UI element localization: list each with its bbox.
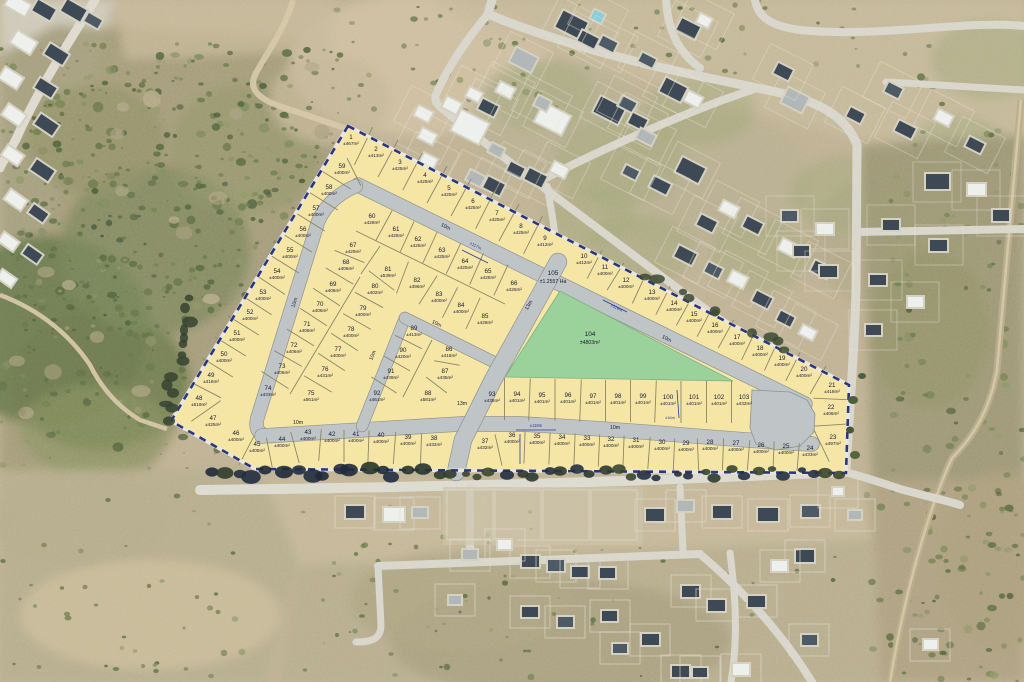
svg-text:27: 27: [733, 440, 740, 447]
svg-text:±401m²: ±401m²: [686, 401, 702, 406]
svg-text:88: 88: [425, 390, 432, 397]
svg-text:±406m²: ±406m²: [325, 288, 341, 293]
svg-text:±425m²: ±425m²: [489, 217, 505, 222]
svg-text:92: 92: [374, 390, 381, 397]
svg-text:44: 44: [279, 436, 286, 443]
svg-text:±118m: ±118m: [530, 423, 543, 428]
svg-text:82: 82: [414, 277, 421, 284]
svg-text:±400m²: ±400m²: [529, 440, 545, 445]
svg-text:±497m²: ±497m²: [825, 441, 841, 446]
svg-text:±433m²: ±433m²: [802, 452, 818, 457]
svg-text:±400m²: ±400m²: [269, 275, 285, 280]
svg-text:±432m²: ±432m²: [426, 442, 442, 447]
svg-text:94: 94: [514, 391, 521, 398]
svg-text:±400m²: ±400m²: [330, 353, 346, 358]
svg-text:22: 22: [828, 404, 835, 411]
svg-text:68: 68: [343, 259, 350, 266]
svg-text:±400m²: ±400m²: [216, 358, 232, 363]
svg-text:±435m²: ±435m²: [437, 375, 453, 380]
svg-text:10m: 10m: [610, 425, 620, 431]
svg-text:4: 4: [423, 172, 427, 179]
svg-text:±406m²: ±406m²: [286, 349, 302, 354]
svg-text:28: 28: [707, 439, 714, 446]
svg-text:90: 90: [400, 347, 407, 354]
svg-text:47: 47: [210, 415, 217, 422]
svg-text:±400m²: ±400m²: [752, 352, 768, 357]
svg-text:±400m²: ±400m²: [579, 442, 595, 447]
svg-text:105: 105: [548, 270, 559, 277]
svg-text:40: 40: [378, 432, 385, 439]
svg-text:±401m²: ±401m²: [711, 401, 727, 406]
svg-text:20: 20: [801, 366, 808, 373]
svg-text:±400m²: ±400m²: [228, 437, 244, 442]
svg-text:±402m²: ±402m²: [367, 290, 383, 295]
svg-text:34: 34: [559, 434, 566, 441]
svg-text:58: 58: [326, 184, 333, 191]
svg-text:±400m²: ±400m²: [644, 296, 660, 301]
svg-text:8: 8: [519, 223, 523, 230]
svg-text:48: 48: [196, 395, 203, 402]
svg-text:±412m²: ±412m²: [537, 242, 553, 247]
svg-text:1: 1: [349, 134, 353, 141]
svg-text:11: 11: [602, 264, 609, 271]
svg-text:±425m²: ±425m²: [465, 205, 481, 210]
svg-text:73: 73: [279, 363, 286, 370]
svg-text:3: 3: [398, 159, 402, 166]
svg-text:65: 65: [485, 268, 492, 275]
svg-text:±400m²: ±400m²: [295, 233, 311, 238]
svg-text:5: 5: [447, 185, 451, 192]
svg-text:63: 63: [439, 247, 446, 254]
svg-text:±400m²: ±400m²: [343, 333, 359, 338]
svg-text:±405m²: ±405m²: [249, 448, 265, 453]
svg-text:32: 32: [608, 436, 615, 443]
svg-text:±400m²: ±400m²: [618, 284, 634, 289]
svg-text:±425m²: ±425m²: [480, 275, 496, 280]
svg-text:104: 104: [585, 331, 596, 338]
svg-text:±461m²: ±461m²: [369, 397, 385, 402]
svg-text:91: 91: [388, 368, 395, 375]
svg-text:±400m²: ±400m²: [686, 318, 702, 323]
svg-text:±425m²: ±425m²: [417, 179, 433, 184]
svg-text:±400m²: ±400m²: [707, 329, 723, 334]
svg-text:18: 18: [757, 345, 764, 352]
svg-text:10m: 10m: [293, 420, 303, 426]
svg-text:95: 95: [539, 392, 546, 399]
svg-text:±425m²: ±425m²: [434, 254, 450, 259]
svg-text:23: 23: [830, 434, 837, 441]
svg-text:31: 31: [633, 437, 640, 444]
svg-text:17: 17: [734, 334, 741, 341]
svg-text:±400m²: ±400m²: [321, 191, 337, 196]
svg-text:87: 87: [442, 368, 449, 375]
svg-text:51: 51: [234, 330, 241, 337]
svg-text:±433m²: ±433m²: [260, 392, 276, 397]
svg-text:±432m²: ±432m²: [736, 401, 752, 406]
svg-text:±426m²: ±426m²: [506, 287, 522, 292]
svg-text:±400m²: ±400m²: [274, 443, 290, 448]
svg-text:69: 69: [330, 281, 337, 288]
svg-text:19: 19: [779, 355, 786, 362]
svg-text:46: 46: [233, 430, 240, 437]
svg-text:25: 25: [783, 443, 790, 450]
svg-text:±406m²: ±406m²: [299, 328, 315, 333]
svg-text:±400m²: ±400m²: [282, 254, 298, 259]
svg-text:±418m²: ±418m²: [824, 389, 840, 394]
svg-text:2: 2: [374, 146, 378, 153]
svg-text:76: 76: [322, 366, 329, 373]
svg-text:74: 74: [265, 385, 272, 392]
svg-text:±416m²: ±416m²: [203, 379, 219, 384]
svg-text:83: 83: [436, 291, 443, 298]
svg-text:78: 78: [348, 326, 355, 333]
svg-text:±429m²: ±429m²: [345, 249, 361, 254]
svg-text:6: 6: [471, 198, 475, 205]
svg-text:16: 16: [712, 322, 719, 329]
svg-text:±431m²: ±431m²: [317, 373, 333, 378]
svg-text:±400m²: ±400m²: [355, 312, 371, 317]
svg-text:97: 97: [590, 393, 597, 400]
svg-text:±400m²: ±400m²: [400, 441, 416, 446]
svg-text:30: 30: [659, 439, 666, 446]
svg-text:37: 37: [482, 438, 489, 445]
svg-text:72: 72: [291, 342, 298, 349]
svg-text:7: 7: [495, 210, 499, 217]
svg-text:±425m²: ±425m²: [441, 192, 457, 197]
svg-text:±1.2557 Ha: ±1.2557 Ha: [540, 279, 567, 285]
svg-text:±400m²: ±400m²: [373, 439, 389, 444]
svg-text:±400m²: ±400m²: [504, 439, 520, 444]
svg-text:61: 61: [393, 226, 400, 233]
svg-text:±401m²: ±401m²: [610, 400, 626, 405]
svg-text:±400m²: ±400m²: [334, 170, 350, 175]
svg-text:98: 98: [615, 393, 622, 400]
svg-text:81: 81: [385, 266, 392, 273]
svg-text:±467m²: ±467m²: [343, 141, 359, 146]
svg-text:±406m²: ±406m²: [338, 266, 354, 271]
svg-text:±400m²: ±400m²: [308, 212, 324, 217]
svg-text:±425m²: ±425m²: [392, 166, 408, 171]
svg-text:±400m²: ±400m²: [348, 438, 364, 443]
svg-text:±401m²: ±401m²: [660, 401, 676, 406]
svg-text:±400m²: ±400m²: [654, 446, 670, 451]
svg-text:±420m²: ±420m²: [395, 354, 411, 359]
svg-text:±400m²: ±400m²: [778, 450, 794, 455]
svg-text:93: 93: [489, 391, 496, 398]
svg-text:77: 77: [335, 346, 342, 353]
svg-text:±401m²: ±401m²: [534, 399, 550, 404]
svg-text:29: 29: [683, 440, 690, 447]
svg-text:±406m²: ±406m²: [274, 370, 290, 375]
svg-text:±400m²: ±400m²: [242, 316, 258, 321]
svg-text:±400m²: ±400m²: [554, 441, 570, 446]
svg-text:±425m²: ±425m²: [410, 243, 426, 248]
svg-text:26: 26: [758, 442, 765, 449]
svg-text:±418m²: ±418m²: [441, 353, 457, 358]
svg-text:103: 103: [739, 394, 750, 401]
svg-text:±413m²: ±413m²: [368, 153, 384, 158]
svg-text:36: 36: [509, 432, 516, 439]
svg-text:±412m²: ±412m²: [576, 260, 592, 265]
svg-text:±581m²: ±581m²: [420, 397, 436, 402]
svg-text:±432m²: ±432m²: [477, 445, 493, 450]
svg-text:60: 60: [369, 213, 376, 220]
svg-text:±400m²: ±400m²: [728, 447, 744, 452]
svg-text:15: 15: [691, 311, 698, 318]
svg-text:86: 86: [446, 346, 453, 353]
svg-text:±396m²: ±396m²: [409, 284, 425, 289]
svg-text:±400m²: ±400m²: [702, 446, 718, 451]
svg-text:±413m²: ±413m²: [406, 332, 422, 337]
svg-text:13m: 13m: [457, 401, 467, 407]
svg-text:102: 102: [714, 394, 725, 401]
svg-text:100: 100: [663, 394, 674, 401]
svg-text:±400m²: ±400m²: [324, 438, 340, 443]
svg-text:±428m²: ±428m²: [364, 220, 380, 225]
svg-text:56: 56: [300, 226, 307, 233]
svg-text:42: 42: [329, 431, 336, 438]
svg-text:±16m: ±16m: [665, 415, 676, 420]
svg-text:±401m²: ±401m²: [560, 399, 576, 404]
svg-text:99: 99: [640, 393, 647, 400]
svg-text:49: 49: [208, 372, 215, 379]
svg-text:9: 9: [543, 235, 547, 242]
svg-text:14: 14: [671, 300, 678, 307]
svg-text:41: 41: [353, 431, 360, 438]
svg-text:±400m²: ±400m²: [431, 298, 447, 303]
svg-text:±400m²: ±400m²: [796, 373, 812, 378]
svg-text:21: 21: [829, 382, 836, 389]
svg-text:57: 57: [313, 205, 320, 212]
svg-text:±425m²: ±425m²: [457, 265, 473, 270]
svg-text:±401m²: ±401m²: [509, 398, 525, 403]
svg-text:±519m²: ±519m²: [191, 402, 207, 407]
svg-text:59: 59: [339, 163, 346, 170]
svg-text:±539m²: ±539m²: [380, 273, 396, 278]
svg-text:±400m²: ±400m²: [300, 436, 316, 441]
svg-text:67: 67: [350, 242, 357, 249]
svg-text:±400m²: ±400m²: [753, 449, 769, 454]
svg-text:43: 43: [305, 429, 312, 436]
svg-text:53: 53: [260, 289, 267, 296]
svg-text:±400m²: ±400m²: [229, 337, 245, 342]
svg-text:54: 54: [274, 268, 281, 275]
svg-text:±561m²: ±561m²: [303, 397, 319, 402]
svg-text:±400m²: ±400m²: [678, 447, 694, 452]
svg-text:±428m²: ±428m²: [477, 320, 493, 325]
svg-text:24: 24: [807, 445, 814, 452]
svg-text:39: 39: [405, 434, 412, 441]
svg-text:±406m²: ±406m²: [312, 308, 328, 313]
svg-text:±400m²: ±400m²: [628, 444, 644, 449]
svg-text:64: 64: [462, 258, 469, 265]
svg-text:45: 45: [254, 441, 261, 448]
svg-text:35: 35: [534, 433, 541, 440]
svg-text:70: 70: [317, 301, 324, 308]
svg-text:62: 62: [415, 236, 422, 243]
svg-text:89: 89: [411, 325, 418, 332]
svg-text:80: 80: [372, 283, 379, 290]
svg-text:±400m²: ±400m²: [597, 271, 613, 276]
svg-text:13: 13: [649, 289, 656, 296]
svg-text:96: 96: [565, 392, 572, 399]
svg-text:±435m²: ±435m²: [484, 398, 500, 403]
svg-text:±401m²: ±401m²: [585, 400, 601, 405]
svg-text:±439m²: ±439m²: [383, 375, 399, 380]
svg-text:±4803m²: ±4803m²: [580, 340, 601, 346]
svg-text:101: 101: [689, 394, 700, 401]
svg-text:55: 55: [287, 247, 294, 254]
svg-text:33: 33: [584, 435, 591, 442]
svg-text:±425m²: ±425m²: [205, 422, 221, 427]
svg-text:±425m²: ±425m²: [513, 230, 529, 235]
svg-text:±406m²: ±406m²: [823, 411, 839, 416]
svg-text:±400m²: ±400m²: [453, 309, 469, 314]
svg-text:±400m²: ±400m²: [729, 341, 745, 346]
svg-text:66: 66: [511, 280, 518, 287]
svg-text:84: 84: [458, 302, 465, 309]
svg-text:10: 10: [581, 253, 588, 260]
svg-text:85: 85: [482, 313, 489, 320]
svg-text:71: 71: [304, 321, 311, 328]
svg-text:±400m²: ±400m²: [666, 307, 682, 312]
svg-text:75: 75: [308, 390, 315, 397]
svg-text:12: 12: [623, 277, 630, 284]
svg-text:±401m²: ±401m²: [635, 400, 651, 405]
svg-text:79: 79: [360, 305, 367, 312]
svg-text:50: 50: [221, 351, 228, 358]
svg-text:±400m²: ±400m²: [255, 296, 271, 301]
svg-text:±425m²: ±425m²: [388, 233, 404, 238]
svg-text:±400m²: ±400m²: [603, 443, 619, 448]
svg-text:38: 38: [431, 435, 438, 442]
svg-text:52: 52: [247, 309, 254, 316]
svg-text:±400m²: ±400m²: [774, 362, 790, 367]
